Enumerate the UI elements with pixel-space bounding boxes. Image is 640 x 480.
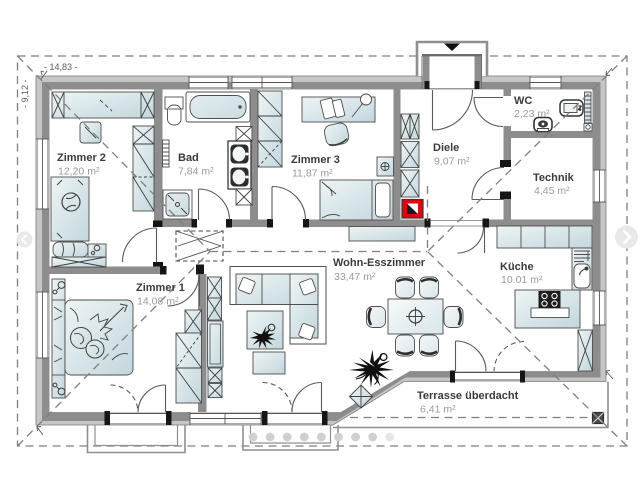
svg-text:10.01 m²: 10.01 m²	[501, 274, 543, 286]
svg-text:Diele: Diele	[433, 142, 459, 154]
svg-text:4,45 m²: 4,45 m²	[534, 185, 570, 197]
svg-text:Zimmer 2: Zimmer 2	[57, 152, 106, 164]
svg-text:Zimmer 1: Zimmer 1	[136, 282, 185, 294]
svg-text:Küche: Küche	[500, 261, 534, 273]
svg-text:9,07 m²: 9,07 m²	[434, 156, 470, 168]
svg-text:WC: WC	[514, 95, 532, 107]
svg-text:Wohn-Esszimmer: Wohn-Esszimmer	[333, 257, 426, 269]
svg-text:Terrasse überdacht: Terrasse überdacht	[417, 390, 519, 402]
svg-text:11,87 m²: 11,87 m²	[292, 168, 333, 180]
svg-text:33,47 m²: 33,47 m²	[334, 271, 376, 283]
svg-text:14,08 m²: 14,08 m²	[137, 296, 179, 308]
svg-text:12,20 m²: 12,20 m²	[58, 166, 100, 178]
svg-text:- 14,83 -: - 14,83 -	[44, 62, 78, 72]
svg-text:Bad: Bad	[178, 152, 199, 164]
svg-text:Technik: Technik	[533, 172, 575, 184]
svg-text:2,23 m²: 2,23 m²	[514, 108, 550, 120]
svg-text:6,41 m²: 6,41 m²	[420, 404, 456, 416]
svg-text:Zimmer 3: Zimmer 3	[291, 154, 340, 166]
svg-text:- 9,12 -: - 9,12 -	[20, 79, 30, 108]
svg-text:7,84 m²: 7,84 m²	[178, 166, 214, 178]
